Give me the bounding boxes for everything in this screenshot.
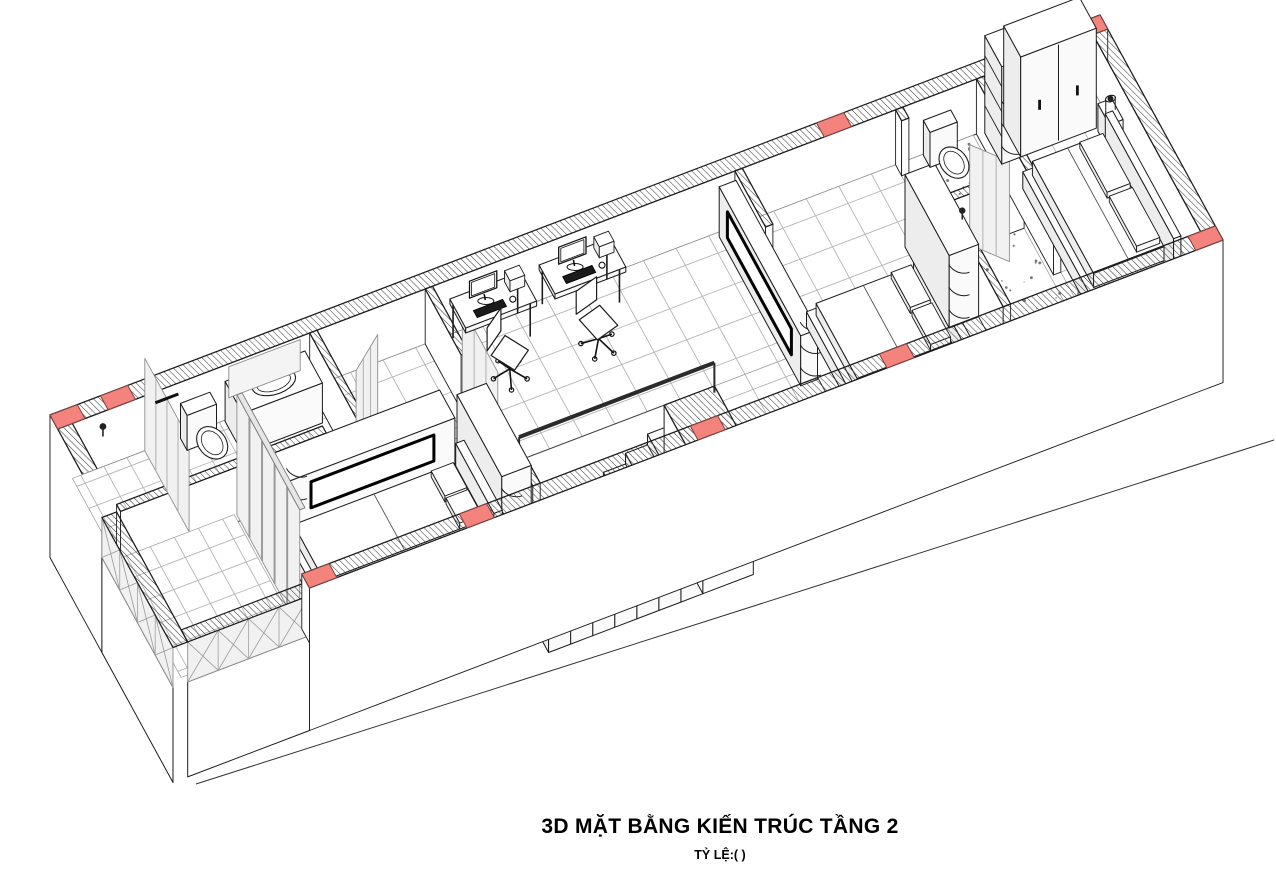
wardrobe-master [1004,0,1097,157]
drawing-sheet: 3D MẶT BẰNG KIẾN TRÚC TẦNG 2 TỶ LỆ:( ) [0,0,1276,879]
floor-plan-3d-drawing [0,0,1276,879]
cross-wall-3-back [896,107,909,176]
